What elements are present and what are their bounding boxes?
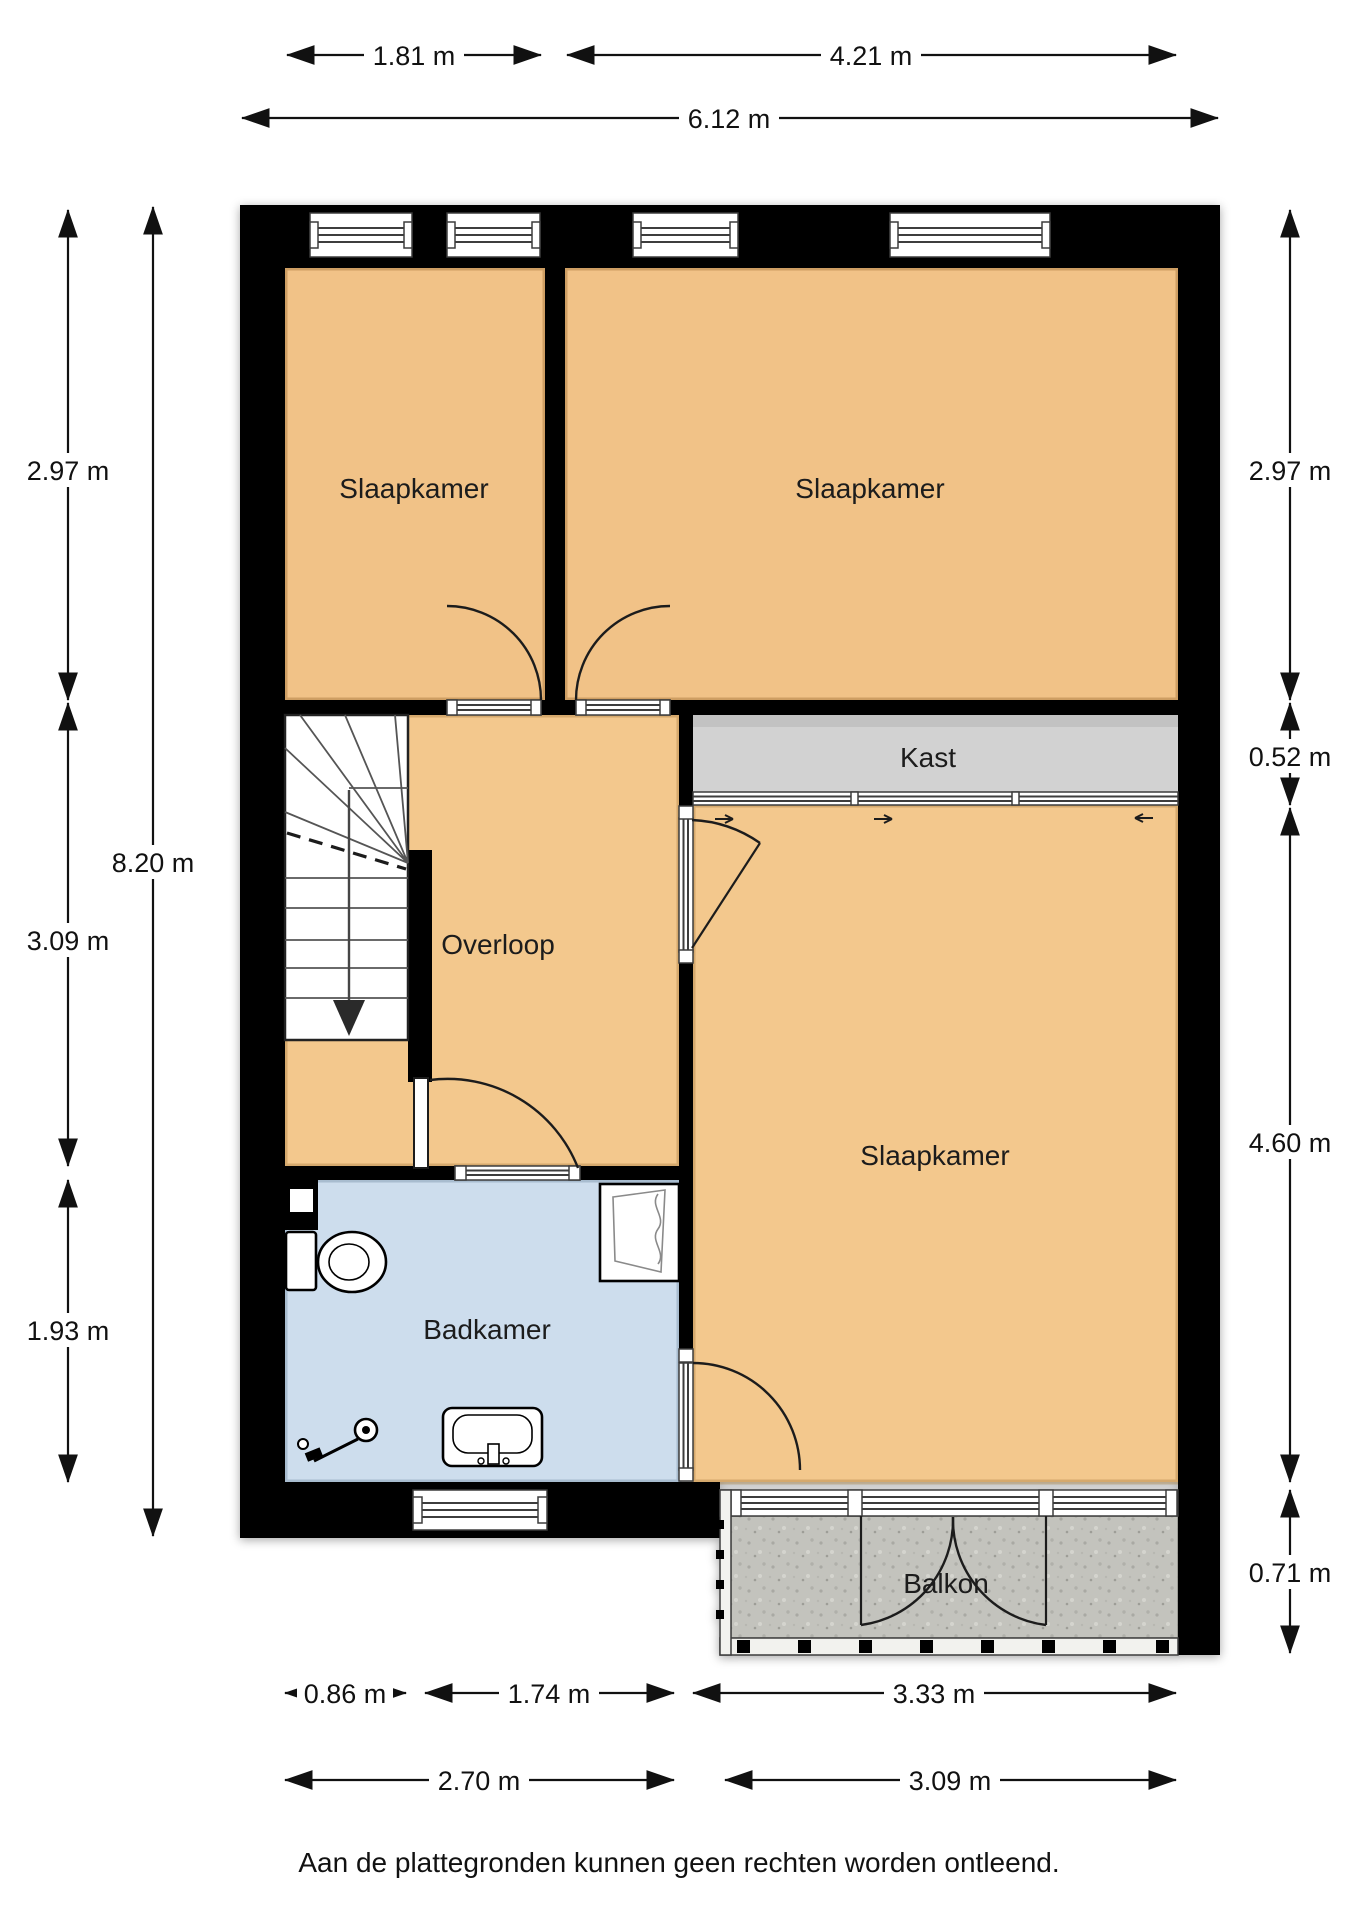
dimension-right-d: 0.71 m bbox=[1240, 1490, 1340, 1653]
dimension-bottom-2a: 2.70 m bbox=[285, 1763, 674, 1797]
room-label-badkamer: Badkamer bbox=[423, 1314, 551, 1345]
svg-text:1.81 m: 1.81 m bbox=[373, 41, 456, 71]
svg-text:0.52 m: 0.52 m bbox=[1249, 742, 1332, 772]
building bbox=[240, 205, 1220, 1655]
svg-text:4.60 m: 4.60 m bbox=[1249, 1128, 1332, 1158]
room-kast-shade bbox=[693, 715, 1178, 727]
window-top-2 bbox=[447, 213, 540, 257]
toilet-icon bbox=[286, 1232, 386, 1292]
room-label-kast: Kast bbox=[900, 742, 956, 773]
dimension-bottom-1c: 3.33 m bbox=[693, 1676, 1176, 1710]
room-label-slaapkamer-large: Slaapkamer bbox=[860, 1140, 1009, 1171]
floor-plan-drawing: Slaapkamer Slaapkamer Kast Overloop Slaa… bbox=[0, 0, 1358, 1920]
wall-lower-divider-2 bbox=[679, 962, 693, 1349]
dimension-top-2: 4.21 m bbox=[567, 38, 1176, 72]
svg-text:3.09 m: 3.09 m bbox=[27, 926, 110, 956]
dimension-right-a: 2.97 m bbox=[1240, 210, 1340, 700]
wall-bedrooms-bottom-2 bbox=[541, 700, 576, 715]
svg-text:1.74 m: 1.74 m bbox=[508, 1679, 591, 1709]
badkamer-niche bbox=[289, 1188, 314, 1213]
dimension-bottom-1a: 0.86 m bbox=[285, 1676, 406, 1710]
balkon-railing-bottom bbox=[720, 1638, 1178, 1655]
svg-text:3.09 m: 3.09 m bbox=[909, 1766, 992, 1796]
dimension-right-b: 0.52 m bbox=[1240, 703, 1340, 805]
svg-text:2.97 m: 2.97 m bbox=[1249, 456, 1332, 486]
sink-icon bbox=[443, 1408, 542, 1466]
window-top-1 bbox=[310, 213, 412, 257]
dimension-right-c: 4.60 m bbox=[1240, 808, 1340, 1482]
door-leaf bbox=[414, 1078, 428, 1168]
stairs bbox=[285, 715, 408, 1040]
svg-text:0.86 m: 0.86 m bbox=[304, 1679, 387, 1709]
svg-text:1.93 m: 1.93 m bbox=[27, 1316, 110, 1346]
svg-text:2.97 m: 2.97 m bbox=[27, 456, 110, 486]
wall-badkamer-top-2 bbox=[580, 1166, 679, 1180]
svg-text:2.70 m: 2.70 m bbox=[438, 1766, 521, 1796]
window-badkamer bbox=[413, 1490, 547, 1530]
wall-right bbox=[1178, 205, 1220, 1655]
kast-sliding-doors bbox=[693, 792, 1178, 805]
dimension-top-total: 6.12 m bbox=[242, 101, 1218, 135]
dimension-left-b: 3.09 m bbox=[18, 703, 118, 1166]
svg-text:3.33 m: 3.33 m bbox=[893, 1679, 976, 1709]
wall-stairs-side bbox=[408, 850, 432, 1082]
svg-text:8.20 m: 8.20 m bbox=[112, 848, 195, 878]
window-top-3 bbox=[633, 213, 738, 257]
wall-lower-divider-1 bbox=[679, 703, 693, 806]
dimension-left-c: 1.93 m bbox=[18, 1180, 118, 1482]
svg-text:4.21 m: 4.21 m bbox=[830, 41, 913, 71]
dimension-bottom-1b: 1.74 m bbox=[425, 1676, 674, 1710]
dimension-bottom-2b: 3.09 m bbox=[725, 1763, 1176, 1797]
window-top-4 bbox=[890, 213, 1050, 257]
svg-text:0.71 m: 0.71 m bbox=[1249, 1558, 1332, 1588]
dimension-top-1: 1.81 m bbox=[287, 38, 541, 72]
svg-text:6.12 m: 6.12 m bbox=[688, 104, 771, 134]
room-label-balkon: Balkon bbox=[903, 1568, 989, 1599]
window-balkon-band bbox=[720, 1490, 1178, 1516]
shower-icon bbox=[600, 1184, 679, 1281]
wall-left bbox=[240, 205, 285, 1538]
floor-plan-page: Slaapkamer Slaapkamer Kast Overloop Slaa… bbox=[0, 0, 1358, 1920]
room-label-slaapkamer-left: Slaapkamer bbox=[339, 473, 488, 504]
wall-bedroom-divider bbox=[545, 205, 565, 703]
dimension-left-a: 2.97 m bbox=[18, 210, 118, 700]
footer-disclaimer: Aan de plattegronden kunnen geen rechten… bbox=[298, 1847, 1059, 1878]
room-label-slaapkamer-right: Slaapkamer bbox=[795, 473, 944, 504]
wall-bedrooms-bottom-3 bbox=[670, 700, 1178, 715]
wall-bedrooms-bottom-1 bbox=[285, 700, 447, 715]
room-label-overloop: Overloop bbox=[441, 929, 555, 960]
